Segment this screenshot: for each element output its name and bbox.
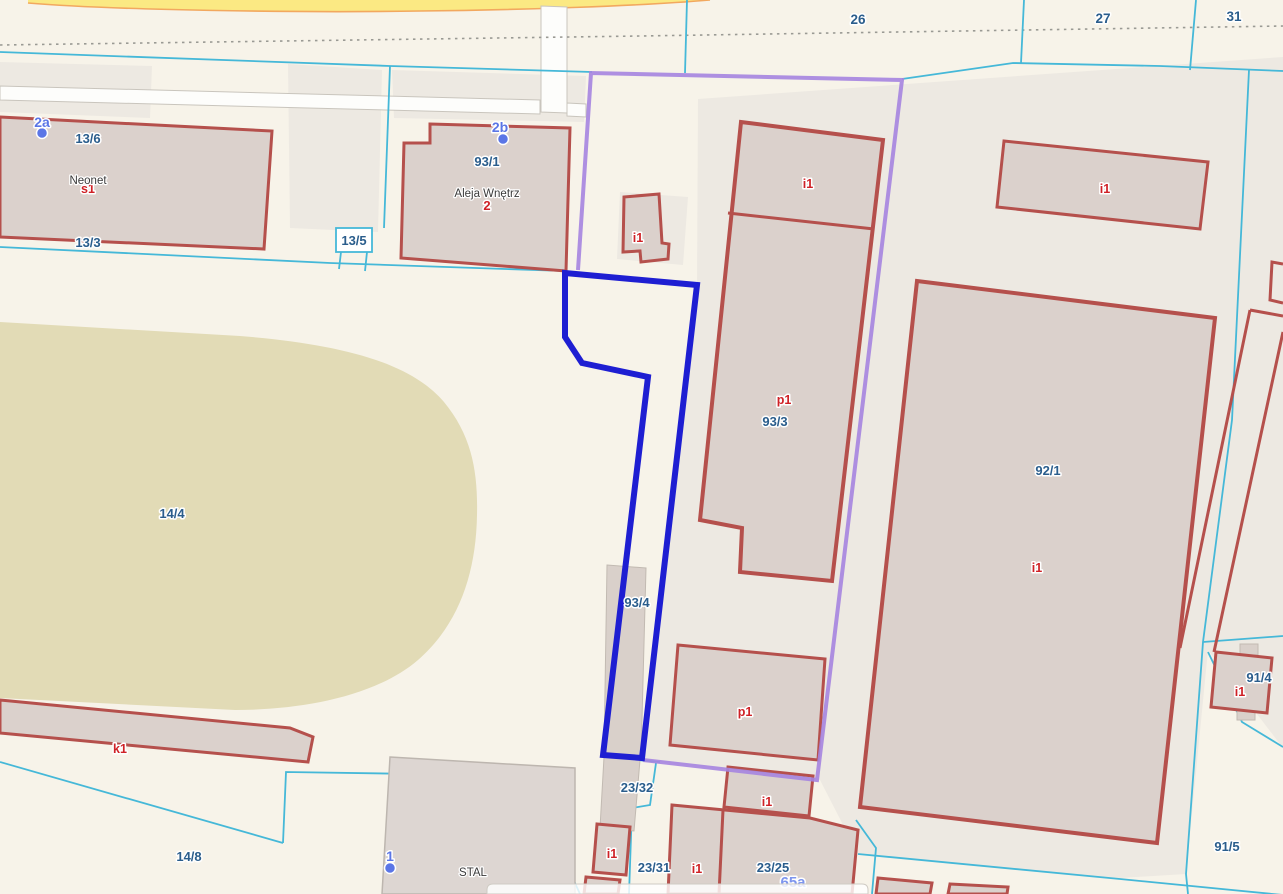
marker-1-label: 1 xyxy=(386,848,394,864)
parcel-label-13-6: 13/6 xyxy=(75,131,100,146)
building-label-i1-topright: i1 xyxy=(1100,182,1110,196)
building-label-p1-small: p1 xyxy=(738,705,753,719)
building-label-p1-93-3: p1 xyxy=(777,393,792,407)
building-label-i1-23-25: i1 xyxy=(692,862,702,876)
parcel-label-13-3: 13/3 xyxy=(75,235,100,250)
map-canvas[interactable]: 2a 2b 1 13/6 13/3 13/5 93/1 14/4 93/3 92… xyxy=(0,0,1283,894)
parcel-label-13-5: 13/5 xyxy=(341,233,366,248)
place-label-stal: STAL xyxy=(459,867,488,879)
parcel-label-23-32: 23/32 xyxy=(621,780,654,795)
marker-1[interactable]: 1 xyxy=(385,848,396,874)
parcel-label-23-31: 23/31 xyxy=(638,860,671,875)
parcel-label-93-3: 93/3 xyxy=(762,414,787,429)
building-p1-small[interactable] xyxy=(670,645,825,760)
walkway-stub xyxy=(567,103,586,117)
building-label-i1-bottom-small: i1 xyxy=(607,847,617,861)
building-fragment-bottom-3[interactable] xyxy=(948,884,1008,894)
building-label-i1-small: i1 xyxy=(633,231,643,245)
building-91-4-tab-top xyxy=(1240,644,1258,655)
building-label-i1-mid-bottom: i1 xyxy=(762,795,772,809)
parcel-label-23-25: 23/25 xyxy=(757,860,790,875)
parcel-label-93-1: 93/1 xyxy=(474,154,499,169)
grid-label-31: 31 xyxy=(1226,9,1242,24)
field-area-14-4[interactable] xyxy=(0,322,477,710)
walkway-vertical xyxy=(541,6,567,113)
marker-2b-label: 2b xyxy=(492,119,508,135)
map-viewport[interactable]: 2a 2b 1 13/6 13/3 13/5 93/1 14/4 93/3 92… xyxy=(0,0,1283,894)
parcel-pad-mid xyxy=(288,64,382,232)
address-label-2: 2 xyxy=(483,198,490,213)
marker-dot-icon xyxy=(385,863,396,874)
parcel-label-92-1: 92/1 xyxy=(1035,463,1060,478)
building-label-k1: k1 xyxy=(113,742,127,756)
bottom-overlay-panel[interactable] xyxy=(487,884,868,894)
parcel-label-91-5: 91/5 xyxy=(1214,839,1239,854)
building-label-i1-92-1: i1 xyxy=(1032,561,1042,575)
grid-label-27: 27 xyxy=(1095,11,1110,26)
building-label-i1-91-4: i1 xyxy=(1235,685,1245,699)
building-label-i1-93-3: i1 xyxy=(803,177,813,191)
grid-label-26: 26 xyxy=(850,12,866,27)
parcel-label-14-4: 14/4 xyxy=(159,506,185,521)
place-label-neonet: Neonet xyxy=(69,175,107,187)
parcel-label-91-4: 91/4 xyxy=(1246,670,1272,685)
marker-2a-label: 2a xyxy=(34,114,50,130)
parcel-label-14-8: 14/8 xyxy=(176,849,201,864)
marker-dot-icon xyxy=(498,134,509,145)
marker-2a[interactable]: 2a xyxy=(34,114,50,139)
parcel-label-93-4: 93/4 xyxy=(624,595,650,610)
